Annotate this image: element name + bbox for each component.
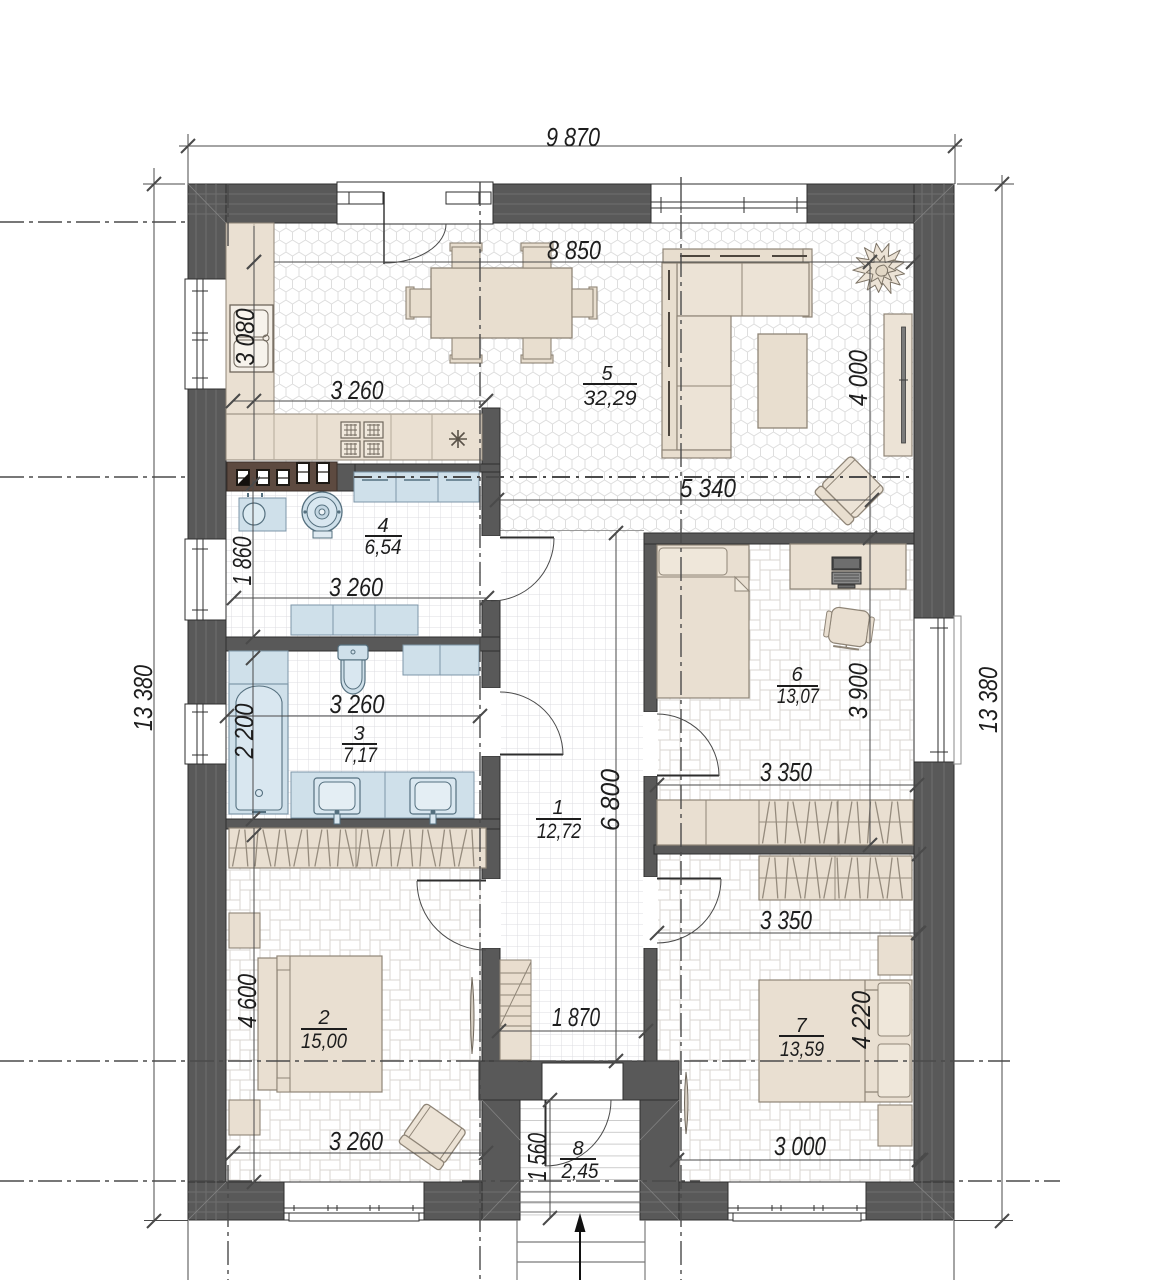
svg-text:8 850: 8 850 xyxy=(547,235,601,265)
svg-text:3 260: 3 260 xyxy=(329,1126,383,1156)
svg-text:3 900: 3 900 xyxy=(843,663,873,719)
svg-text:3 260: 3 260 xyxy=(329,572,383,602)
svg-text:4 220: 4 220 xyxy=(846,991,876,1049)
svg-text:6 800: 6 800 xyxy=(595,768,625,831)
svg-text:2: 2 xyxy=(317,1007,329,1029)
svg-text:7: 7 xyxy=(795,1015,807,1037)
svg-text:3 350: 3 350 xyxy=(760,757,812,787)
svg-text:1 560: 1 560 xyxy=(522,1133,552,1181)
svg-text:3: 3 xyxy=(353,723,364,745)
svg-text:1 860: 1 860 xyxy=(227,536,257,585)
svg-text:5 340: 5 340 xyxy=(680,473,736,503)
svg-text:15,00: 15,00 xyxy=(301,1030,347,1053)
svg-text:1: 1 xyxy=(552,797,563,819)
svg-text:1 870: 1 870 xyxy=(552,1002,600,1032)
svg-text:32,29: 32,29 xyxy=(584,387,637,410)
svg-text:2,45: 2,45 xyxy=(561,1160,599,1183)
svg-text:13 380: 13 380 xyxy=(973,667,1003,733)
svg-text:3 260: 3 260 xyxy=(330,689,385,719)
svg-text:6,54: 6,54 xyxy=(365,536,402,559)
svg-text:3 080: 3 080 xyxy=(230,308,260,365)
svg-text:3 260: 3 260 xyxy=(331,375,384,405)
svg-text:3 000: 3 000 xyxy=(774,1131,826,1161)
svg-text:4 600: 4 600 xyxy=(232,974,262,1028)
svg-text:13,59: 13,59 xyxy=(780,1038,824,1061)
svg-text:4: 4 xyxy=(377,515,388,537)
svg-text:4 000: 4 000 xyxy=(843,350,873,406)
svg-text:7,17: 7,17 xyxy=(343,744,378,767)
svg-text:8: 8 xyxy=(572,1138,583,1160)
svg-text:12,72: 12,72 xyxy=(537,820,581,843)
svg-text:6: 6 xyxy=(791,664,803,686)
svg-text:2 200: 2 200 xyxy=(229,703,259,759)
svg-text:5: 5 xyxy=(601,363,613,385)
svg-text:9 870: 9 870 xyxy=(546,122,600,152)
svg-text:13,07: 13,07 xyxy=(777,685,820,708)
svg-text:3 350: 3 350 xyxy=(760,905,812,935)
svg-text:13 380: 13 380 xyxy=(128,665,158,731)
